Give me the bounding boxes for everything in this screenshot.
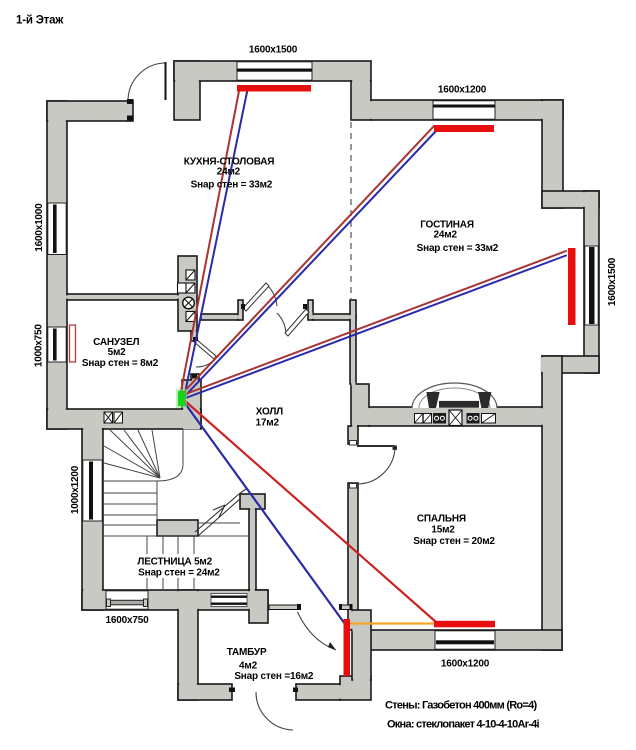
svg-text:Окна: стеклопакет 4-10-4-10Ar-: Окна: стеклопакет 4-10-4-10Ar-4i [387,719,540,731]
svg-text:1000x1200: 1000x1200 [70,465,81,514]
svg-text:ХОЛЛ: ХОЛЛ [256,407,283,418]
svg-text:Sнар стен = 24м2: Sнар стен = 24м2 [138,567,220,578]
svg-text:1600x1500: 1600x1500 [249,45,298,56]
svg-text:15м2: 15м2 [431,525,455,536]
svg-text:24м2: 24м2 [434,230,458,241]
svg-text:17м2: 17м2 [256,418,280,429]
svg-text:Sнар стен = 33м2: Sнар стен = 33м2 [417,243,499,254]
svg-text:1600x1200: 1600x1200 [441,659,490,670]
svg-text:4м2: 4м2 [239,660,258,671]
svg-text:Sнар стен = 33м2: Sнар стен = 33м2 [191,180,273,191]
svg-text:Sнар стен = 8м2: Sнар стен = 8м2 [82,358,159,369]
svg-text:Sнар стен = 20м2: Sнар стен = 20м2 [413,536,495,547]
svg-text:1000x750: 1000x750 [33,324,44,368]
svg-text:1600x1200: 1600x1200 [438,85,487,96]
svg-text:ЛЕСТНИЦА 5м2: ЛЕСТНИЦА 5м2 [137,556,212,567]
svg-text:СПАЛЬНЯ: СПАЛЬНЯ [417,513,466,524]
svg-text:24м2: 24м2 [217,167,241,178]
svg-text:5м2: 5м2 [108,347,127,358]
svg-text:1-й Этаж: 1-й Этаж [16,15,64,27]
svg-text:1600x1500: 1600x1500 [607,257,618,306]
svg-text:1600x1000: 1600x1000 [34,203,45,252]
svg-text:ТАМБУР: ТАМБУР [227,647,267,658]
svg-text:Sнар стен =16м2: Sнар стен =16м2 [234,671,314,682]
svg-text:Стены: Газобетон 400мм (Ro=4): Стены: Газобетон 400мм (Ro=4) [385,700,537,712]
svg-text:1600x750: 1600x750 [106,615,150,626]
